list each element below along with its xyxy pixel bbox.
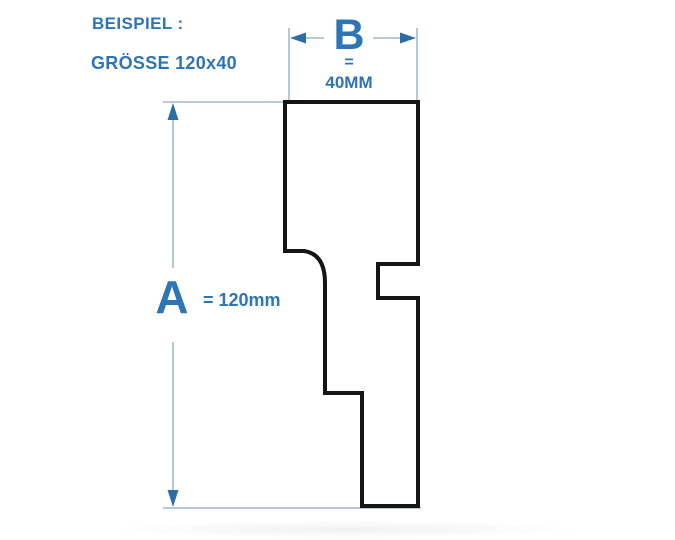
size-label: GRÖSSE 120x40	[91, 53, 237, 74]
arrow-down-icon	[168, 490, 179, 507]
dimension-b-equals: =	[310, 54, 388, 72]
arrow-left-icon	[290, 33, 306, 44]
example-label: BEISPIEL :	[92, 14, 184, 34]
dimension-a-letter: A	[143, 270, 201, 324]
dimension-b-letter: B	[310, 11, 388, 60]
arrow-up-icon	[168, 103, 179, 120]
arrow-right-icon	[400, 33, 416, 44]
profile-outline	[285, 102, 418, 506]
dimension-b-value: 40MM	[310, 73, 388, 93]
diagram-canvas: BEISPIEL : GRÖSSE 120x40 B = 40MM A = 12…	[0, 0, 675, 540]
dimension-a-value: = 120mm	[203, 290, 281, 311]
